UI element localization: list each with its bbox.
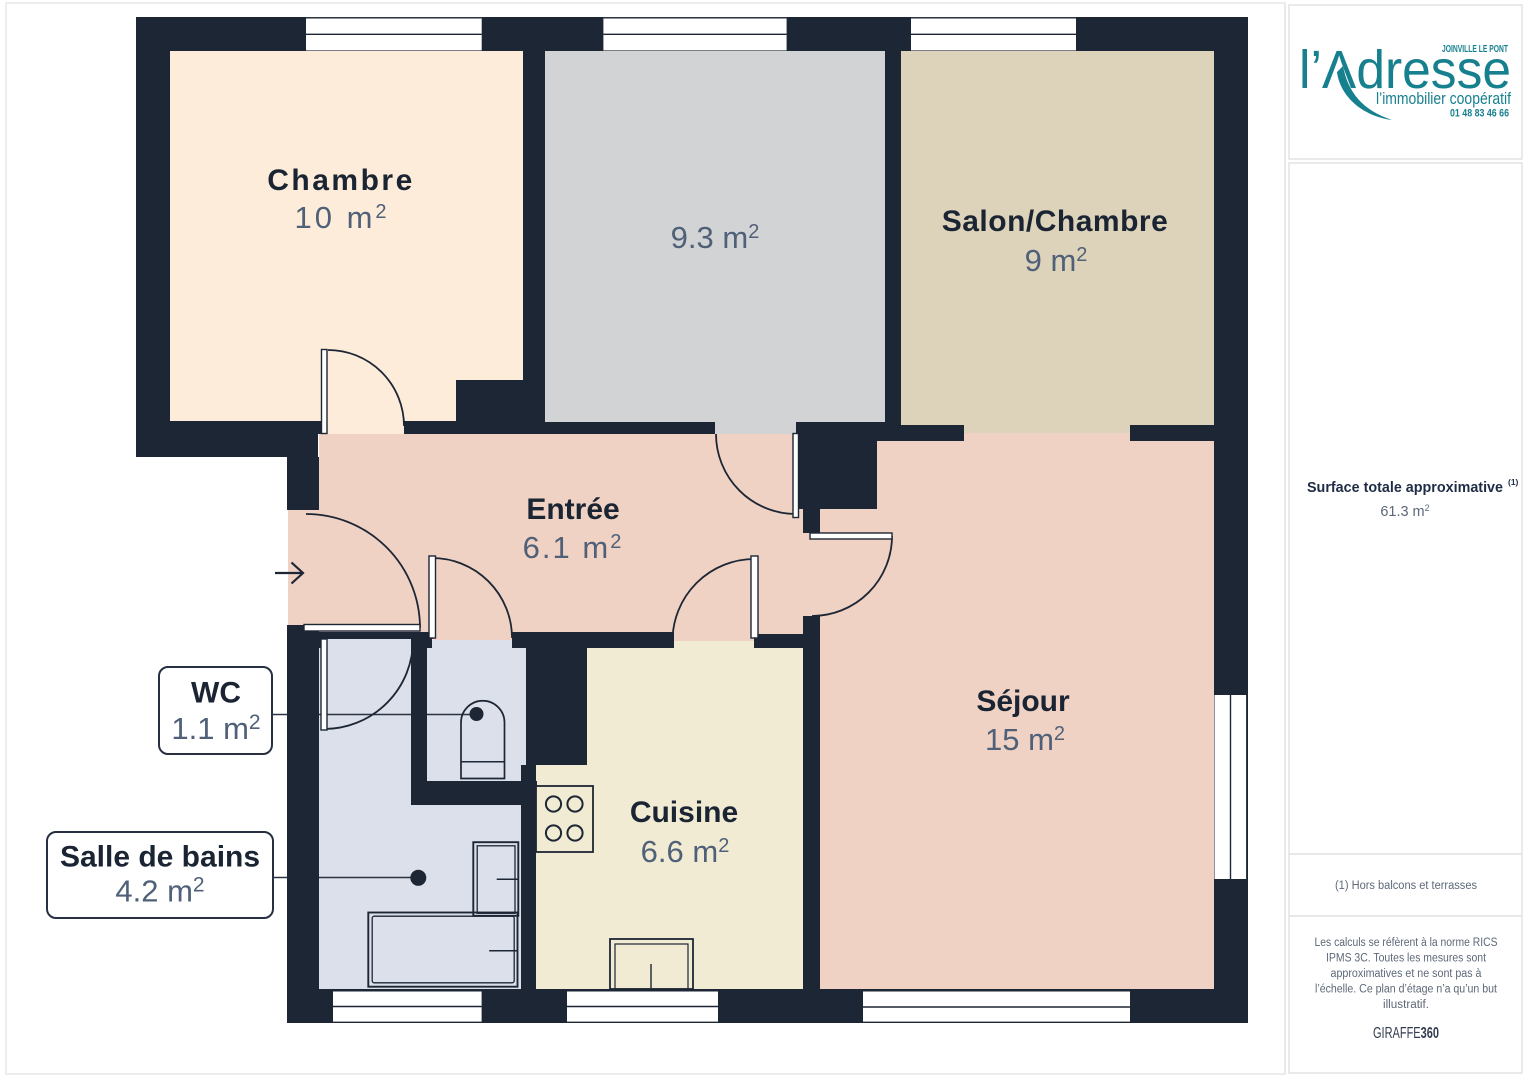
svg-text:Séjour: Séjour [976,685,1070,718]
svg-text:approximatives et ne sont pas: approximatives et ne sont pas à [1331,968,1483,980]
svg-text:01 48 83 46 66: 01 48 83 46 66 [1450,108,1509,120]
svg-text:GIRAFFE360: GIRAFFE360 [1373,1025,1439,1042]
svg-text:9.3 m2: 9.3 m2 [671,220,760,255]
svg-text:l’immobilier coopératif: l’immobilier coopératif [1376,90,1511,108]
svg-text:4.2 m2: 4.2 m2 [115,874,204,909]
svg-text:15 m2: 15 m2 [985,722,1065,757]
svg-text:10 m2: 10 m2 [294,200,389,235]
svg-text:l’échelle. Ce plan d’étage n’a: l’échelle. Ce plan d’étage n’a qu’un but [1315,984,1498,996]
svg-text:illustratif.: illustratif. [1383,999,1429,1011]
svg-text:(1) Hors balcons et terrasses: (1) Hors balcons et terrasses [1335,880,1477,892]
svg-text:Chambre: Chambre [267,164,415,197]
svg-text:Entrée: Entrée [526,493,619,526]
svg-text:1.1 m2: 1.1 m2 [171,711,260,746]
svg-text:6.1 m2: 6.1 m2 [523,530,624,565]
svg-text:Les calculs se réfèrent à la n: Les calculs se réfèrent à la norme RICS [1315,937,1498,949]
svg-text:IPMS 3C. Toutes les mesures so: IPMS 3C. Toutes les mesures sont [1326,953,1487,965]
svg-text:JOINVILLE LE PONT: JOINVILLE LE PONT [1442,43,1508,55]
svg-text:Surface totale approximative: Surface totale approximative [1307,479,1503,496]
svg-text:Cuisine: Cuisine [630,796,738,829]
svg-text:(1): (1) [1508,477,1519,487]
svg-text:6.6 m2: 6.6 m2 [641,834,730,869]
svg-text:WC: WC [191,677,241,710]
svg-text:Salle de bains: Salle de bains [60,841,260,874]
svg-text:Salon/Chambre: Salon/Chambre [942,205,1169,238]
svg-text:61.3 m2: 61.3 m2 [1380,503,1429,520]
